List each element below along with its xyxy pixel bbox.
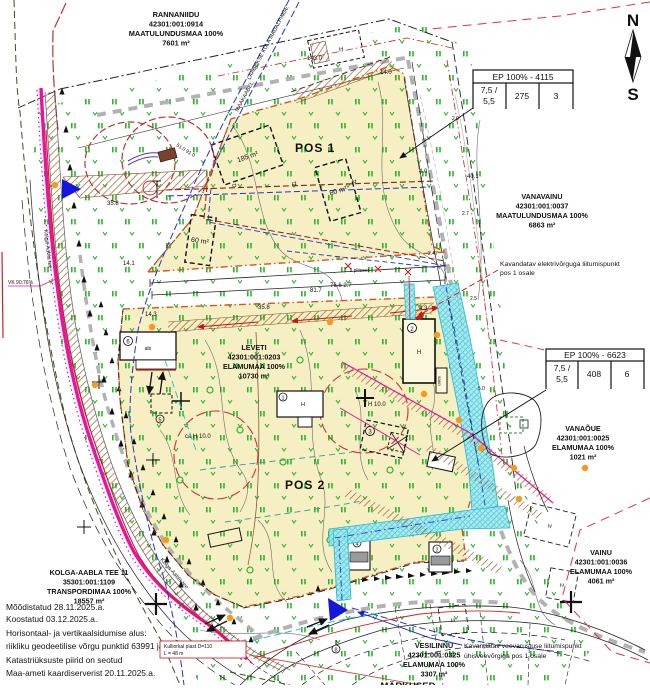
svg-text:7,5 /: 7,5 / xyxy=(554,363,571,373)
svg-text:EP 100% - 6623: EP 100% - 6623 xyxy=(564,350,626,360)
svg-text:ELAMUMAA 100%: ELAMUMAA 100% xyxy=(552,443,615,452)
svg-text:MAATULUNDUSMAA 100%: MAATULUNDUSMAA 100% xyxy=(129,29,224,38)
svg-text:ühisveevõrgiga pos 1 osale: ühisveevõrgiga pos 1 osale xyxy=(464,653,547,660)
svg-text:Mõõdistatud 28.11.2025.a.: Mõõdistatud 28.11.2025.a. xyxy=(6,602,105,612)
svg-text:8: 8 xyxy=(334,648,337,654)
svg-text:3307 m²: 3307 m² xyxy=(421,670,448,679)
svg-text:Kavandatav veevarustuse liitum: Kavandatav veevarustuse liitumispunkt xyxy=(464,643,582,650)
svg-text:2.5: 2.5 xyxy=(470,296,477,302)
svg-text:abi: abi xyxy=(145,346,152,352)
svg-text:VANAÕUE: VANAÕUE xyxy=(565,424,601,433)
svg-text:5.0: 5.0 xyxy=(478,386,485,392)
svg-text:2: 2 xyxy=(435,548,438,554)
svg-text:5: 5 xyxy=(158,418,161,424)
svg-text:ELAMUMAA 100%: ELAMUMAA 100% xyxy=(223,362,286,371)
svg-text:10730 m²: 10730 m² xyxy=(239,372,270,381)
svg-text:kt: kt xyxy=(352,179,357,185)
svg-text:2.47: 2.47 xyxy=(428,251,438,257)
svg-text:ELAMUMAA 100%: ELAMUMAA 100% xyxy=(403,660,466,669)
svg-text:7601 m²: 7601 m² xyxy=(162,39,190,48)
svg-text:L = 48 m: L = 48 m xyxy=(164,651,183,657)
svg-text:6863 m²: 6863 m² xyxy=(529,221,556,230)
svg-text:3: 3 xyxy=(554,91,559,101)
svg-text:4061 m²: 4061 m² xyxy=(588,577,615,586)
svg-text:Koostatud 03.12.2025.a.: Koostatud 03.12.2025.a. xyxy=(6,614,97,624)
svg-text:42301:001:0036: 42301:001:0036 xyxy=(575,558,628,567)
svg-text:VK 90.76%: VK 90.76% xyxy=(8,280,34,286)
svg-text:VAINU: VAINU xyxy=(590,548,612,557)
svg-text:5,5: 5,5 xyxy=(556,374,568,384)
svg-text:14.0: 14.0 xyxy=(380,70,392,76)
svg-text:143.0: 143.0 xyxy=(307,56,323,62)
svg-text:2.9: 2.9 xyxy=(452,116,459,122)
svg-text:Katastriüksuste piirid on seot: Katastriüksuste piirid on seotud xyxy=(6,655,123,665)
svg-text:KOLGA-AABLA TEE 11: KOLGA-AABLA TEE 11 xyxy=(50,568,129,577)
svg-text:5,5: 5,5 xyxy=(483,96,495,106)
svg-text:2.7: 2.7 xyxy=(462,211,469,217)
svg-text:76.6 2.7: 76.6 2.7 xyxy=(330,283,352,289)
svg-text:H 10.0: H 10.0 xyxy=(368,402,386,408)
svg-text:4.0: 4.0 xyxy=(419,169,428,175)
svg-text:ca H 10.0: ca H 10.0 xyxy=(185,434,211,440)
svg-text:35.8: 35.8 xyxy=(107,201,119,207)
svg-text:TRANSPORDIMAA 100%: TRANSPORDIMAA 100% xyxy=(47,587,132,596)
svg-text:408: 408 xyxy=(587,369,601,379)
svg-text:275: 275 xyxy=(515,91,529,101)
svg-text:RANNANIIDU: RANNANIIDU xyxy=(153,10,200,19)
svg-text:H: H xyxy=(451,618,456,624)
svg-text:6: 6 xyxy=(625,369,630,379)
svg-text:81.7: 81.7 xyxy=(310,288,322,294)
svg-text:42301:001:0037: 42301:001:0037 xyxy=(516,202,569,211)
svg-text:4.3: 4.3 xyxy=(419,306,428,312)
svg-text:S: S xyxy=(627,85,638,104)
svg-text:ct: ct xyxy=(232,183,237,189)
svg-text:42301:001:0203: 42301:001:0203 xyxy=(228,353,281,362)
svg-text:ELAMUMAA 100%: ELAMUMAA 100% xyxy=(570,567,633,576)
svg-text:Kavandatav elektrivõrguga liit: Kavandatav elektrivõrguga liitumispunkt xyxy=(500,261,620,268)
svg-text:LEVETI: LEVETI xyxy=(241,343,266,352)
svg-text:MAATULUNDUSMAA 100%: MAATULUNDUSMAA 100% xyxy=(496,211,588,220)
svg-text:pos 1 osale: pos 1 osale xyxy=(500,270,535,277)
svg-text:il pliiseer: il pliiseer xyxy=(350,268,370,274)
svg-text:35.8: 35.8 xyxy=(258,305,270,311)
svg-text:H: H xyxy=(301,402,305,408)
svg-text:Horisontaal- ja vertikaalsidum: Horisontaal- ja vertikaalsidumise alus: xyxy=(6,628,147,638)
svg-text:1021 m²: 1021 m² xyxy=(570,453,597,462)
svg-text:H: H xyxy=(417,350,421,356)
svg-text:42301:001:0914: 42301:001:0914 xyxy=(149,20,204,29)
svg-text:42301:001:0025: 42301:001:0025 xyxy=(557,434,610,443)
svg-text:VANAVAINU: VANAVAINU xyxy=(521,192,562,201)
svg-text:14.3: 14.3 xyxy=(145,312,157,318)
svg-text:7,5 /: 7,5 / xyxy=(481,85,498,95)
svg-text:saun: saun xyxy=(437,376,442,386)
svg-text:40.1: 40.1 xyxy=(467,174,479,180)
svg-text:POS 1: POS 1 xyxy=(295,141,335,155)
svg-text:14.1: 14.1 xyxy=(123,261,135,267)
svg-text:42301:001:0325: 42301:001:0325 xyxy=(408,651,461,660)
svg-text:Kulliorkal plast D=110: Kulliorkal plast D=110 xyxy=(164,644,212,650)
svg-text:35301:001:1109: 35301:001:1109 xyxy=(63,578,115,587)
svg-text:MÄRKUSED: MÄRKUSED xyxy=(381,681,436,685)
svg-text:1: 1 xyxy=(281,396,284,402)
svg-text:POS 2: POS 2 xyxy=(285,478,325,492)
svg-text:ct: ct xyxy=(292,181,297,187)
svg-text:EP 100% - 4115: EP 100% - 4115 xyxy=(492,72,553,82)
svg-text:Maa-ameti kaardiserverist 20.1: Maa-ameti kaardiserverist 20.11.2025.a. xyxy=(6,668,155,678)
svg-text:riikliku geodeetilise võrgu pu: riikliku geodeetilise võrgu punktid 6399… xyxy=(6,641,187,651)
svg-text:N: N xyxy=(627,11,639,30)
svg-text:VESILINNU: VESILINNU xyxy=(415,641,453,650)
